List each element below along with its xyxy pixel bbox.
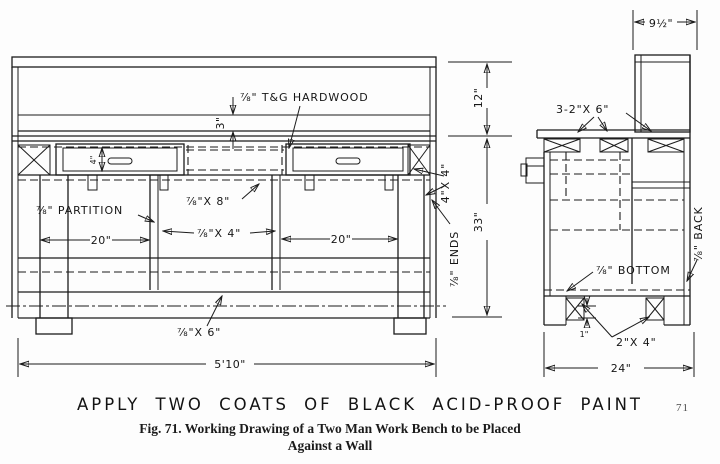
- label-posts-4x4: 4"X 4": [439, 163, 452, 204]
- drawer-pull-side: [521, 158, 544, 183]
- label-back-board: ⅞" BACK: [692, 206, 705, 261]
- right-drawer: [286, 144, 410, 175]
- label-bottom-rail: ⅞"X 6": [177, 326, 221, 339]
- right-drawer-pull: [336, 158, 360, 164]
- label-runners-2x4: 2"X 4": [616, 336, 657, 349]
- label-rail-4in: ⅞"X 4": [197, 227, 241, 240]
- paint-instruction-note: APPLY TWO COATS OF BLACK ACID-PROOF PAIN…: [0, 395, 720, 414]
- dim-drawer-front-4in: 4": [89, 156, 98, 165]
- backsplash-board: [635, 55, 690, 132]
- book-page: 3" ⅞" T&G HARDWOOD 4" ⅞" PARTITION ⅞"X 8…: [0, 0, 720, 464]
- label-tg-hardwood: ⅞" T&G HARDWOOD: [240, 91, 369, 104]
- dim-overall-width: 5'10": [214, 358, 246, 371]
- top-frame-2x6-members: [544, 139, 684, 152]
- dim-depth-24in: 24": [611, 362, 632, 375]
- label-partition: ⅞" PARTITION: [36, 204, 123, 217]
- left-post-cross-brace: [18, 145, 50, 175]
- dim-runner-1in: 1": [580, 330, 589, 339]
- side-section-view: [521, 55, 690, 325]
- label-rail-8in: ⅞"X 8": [186, 195, 230, 208]
- right-foot: [394, 318, 426, 334]
- label-ends: ⅞" ENDS: [448, 231, 461, 287]
- left-foot: [36, 318, 72, 334]
- label-bottom-board: ⅞" BOTTOM: [596, 264, 671, 277]
- figure-caption-line2: Against a Wall: [0, 438, 660, 454]
- left-drawer-pull: [108, 158, 132, 164]
- dim-shelf-depth: 9½": [649, 17, 673, 30]
- side-view-annotations: 9½" 3-2"X 6" ⅞" BOTTOM ⅞" BACK 1" 2"X 4"…: [544, 10, 705, 377]
- page-number: 71: [676, 402, 689, 414]
- dim-bay-right-20in: 20": [331, 233, 352, 246]
- dim-top-edge-3in: 3": [214, 116, 227, 129]
- left-drawer: [56, 144, 184, 175]
- front-view-annotations: 3" ⅞" T&G HARDWOOD 4" ⅞" PARTITION ⅞"X 8…: [18, 62, 512, 377]
- dim-backboard-12in: 12": [472, 88, 485, 109]
- label-top-frame: 3-2"X 6": [556, 103, 609, 116]
- dim-height-33in: 33": [472, 212, 485, 233]
- figure-caption-line1: Fig. 71. Working Drawing of a Two Man Wo…: [0, 421, 660, 437]
- runner-feet: [544, 296, 690, 325]
- dim-bay-left-20in: 20": [91, 234, 112, 247]
- top-cap-board: [12, 57, 436, 67]
